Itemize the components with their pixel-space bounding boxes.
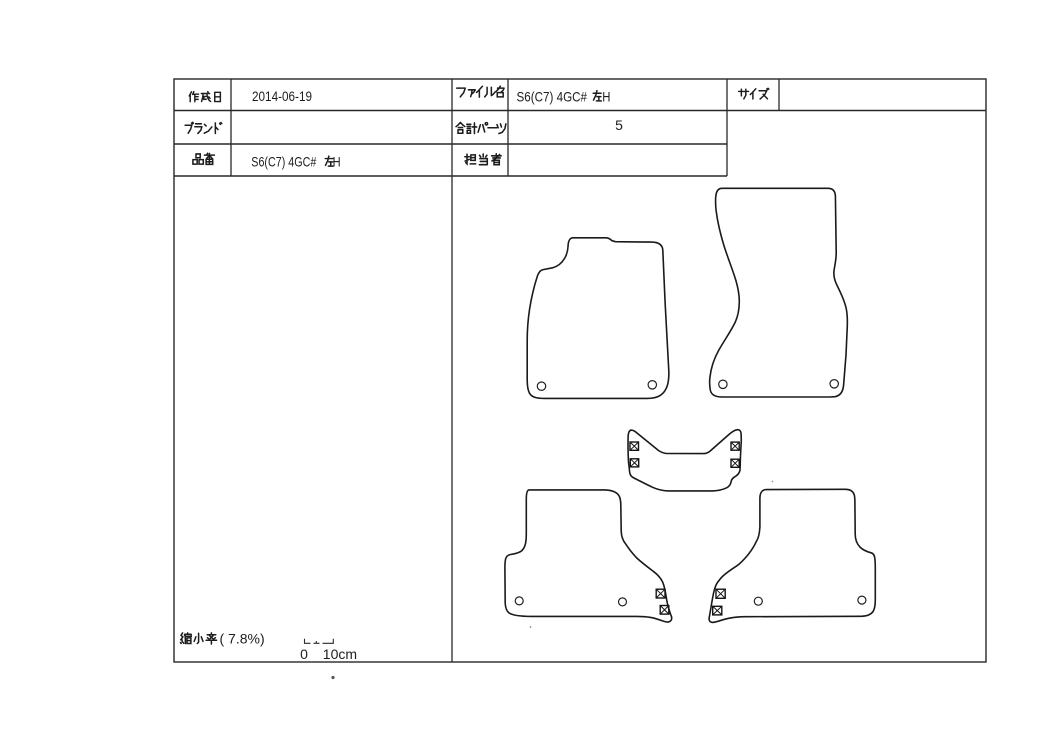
svg-text:S6(C7) 4GC#: S6(C7) 4GC# [251, 154, 316, 170]
svg-text:H: H [602, 88, 610, 104]
svg-text:2014-06-19: 2014-06-19 [252, 88, 312, 104]
svg-text:H: H [333, 154, 341, 170]
svg-text:( 7.8%): ( 7.8%) [220, 631, 265, 647]
svg-text:5: 5 [615, 117, 623, 133]
svg-text:10cm: 10cm [323, 646, 357, 662]
svg-text:0: 0 [300, 646, 308, 662]
svg-text:S6(C7) 4GC#: S6(C7) 4GC# [517, 88, 588, 104]
